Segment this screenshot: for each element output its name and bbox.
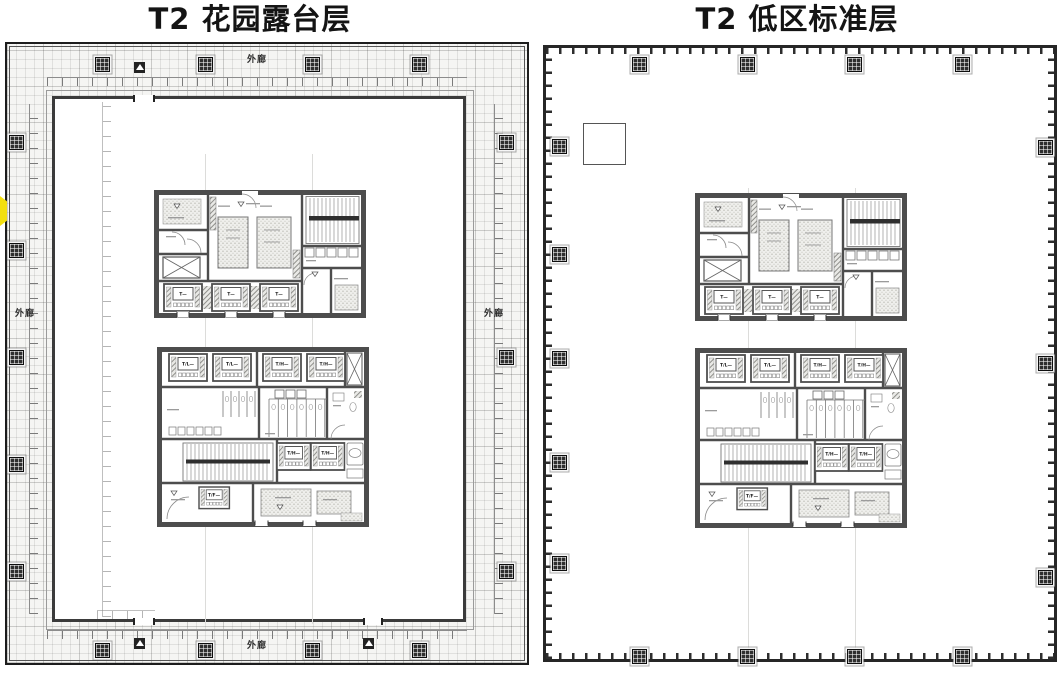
structural-column — [9, 457, 24, 472]
corridor-label-left: 外廊 — [15, 306, 35, 319]
structural-column — [847, 649, 862, 664]
structural-column — [9, 564, 24, 579]
axis-dimension-line — [102, 102, 111, 617]
structural-column — [955, 57, 970, 72]
core-lower — [157, 347, 369, 527]
drawing-canvas: T2 花园露台层 T2 低区标准层 — [0, 0, 1062, 673]
structural-column — [1038, 140, 1053, 155]
structural-column — [955, 649, 970, 664]
wall-opening — [134, 95, 154, 102]
structural-column — [740, 649, 755, 664]
corridor-label-bottom: 外廊 — [247, 638, 267, 651]
structural-column — [740, 57, 755, 72]
curtain-wall-mullions-bottom — [546, 653, 1054, 659]
structural-column — [95, 57, 110, 72]
dimension-string-left — [29, 104, 38, 614]
core-lower — [695, 348, 907, 528]
plan-right — [543, 45, 1057, 662]
plan-title-right: T2 低区标准层 — [632, 0, 962, 40]
wall-opening — [134, 618, 154, 625]
wall-opening — [364, 618, 382, 625]
vent-marker-icon — [134, 62, 145, 73]
structural-column — [499, 350, 514, 365]
vent-marker-icon — [363, 638, 374, 649]
structural-column — [305, 57, 320, 72]
structural-column — [9, 135, 24, 150]
plan-left: 外廊 外廊 外廊 外廊 — [5, 42, 529, 665]
structural-column — [1038, 356, 1053, 371]
structural-column — [9, 243, 24, 258]
structural-column — [499, 564, 514, 579]
structural-column — [305, 643, 320, 658]
structural-column — [552, 247, 567, 262]
curtain-wall-mullions-top — [546, 48, 1054, 54]
core-upper — [154, 190, 366, 318]
shaft-opening-outline — [583, 123, 626, 165]
structural-column — [847, 57, 862, 72]
structural-column — [552, 556, 567, 571]
structural-column — [198, 643, 213, 658]
structural-column — [552, 455, 567, 470]
structural-column — [632, 649, 647, 664]
structural-column — [198, 57, 213, 72]
corridor-label-top: 外廊 — [247, 52, 267, 65]
structural-column — [499, 135, 514, 150]
structural-column — [9, 350, 24, 365]
corridor-label-right: 外廊 — [484, 306, 504, 319]
structural-column — [552, 139, 567, 154]
structural-column — [95, 643, 110, 658]
core-upper — [695, 193, 907, 321]
structural-column — [1038, 570, 1053, 585]
structural-column — [412, 643, 427, 658]
vent-marker-icon — [134, 638, 145, 649]
structural-column — [552, 351, 567, 366]
dimension-string-top — [47, 77, 467, 86]
structural-column — [632, 57, 647, 72]
structural-column — [412, 57, 427, 72]
plan-title-left: T2 花园露台层 — [85, 0, 415, 40]
